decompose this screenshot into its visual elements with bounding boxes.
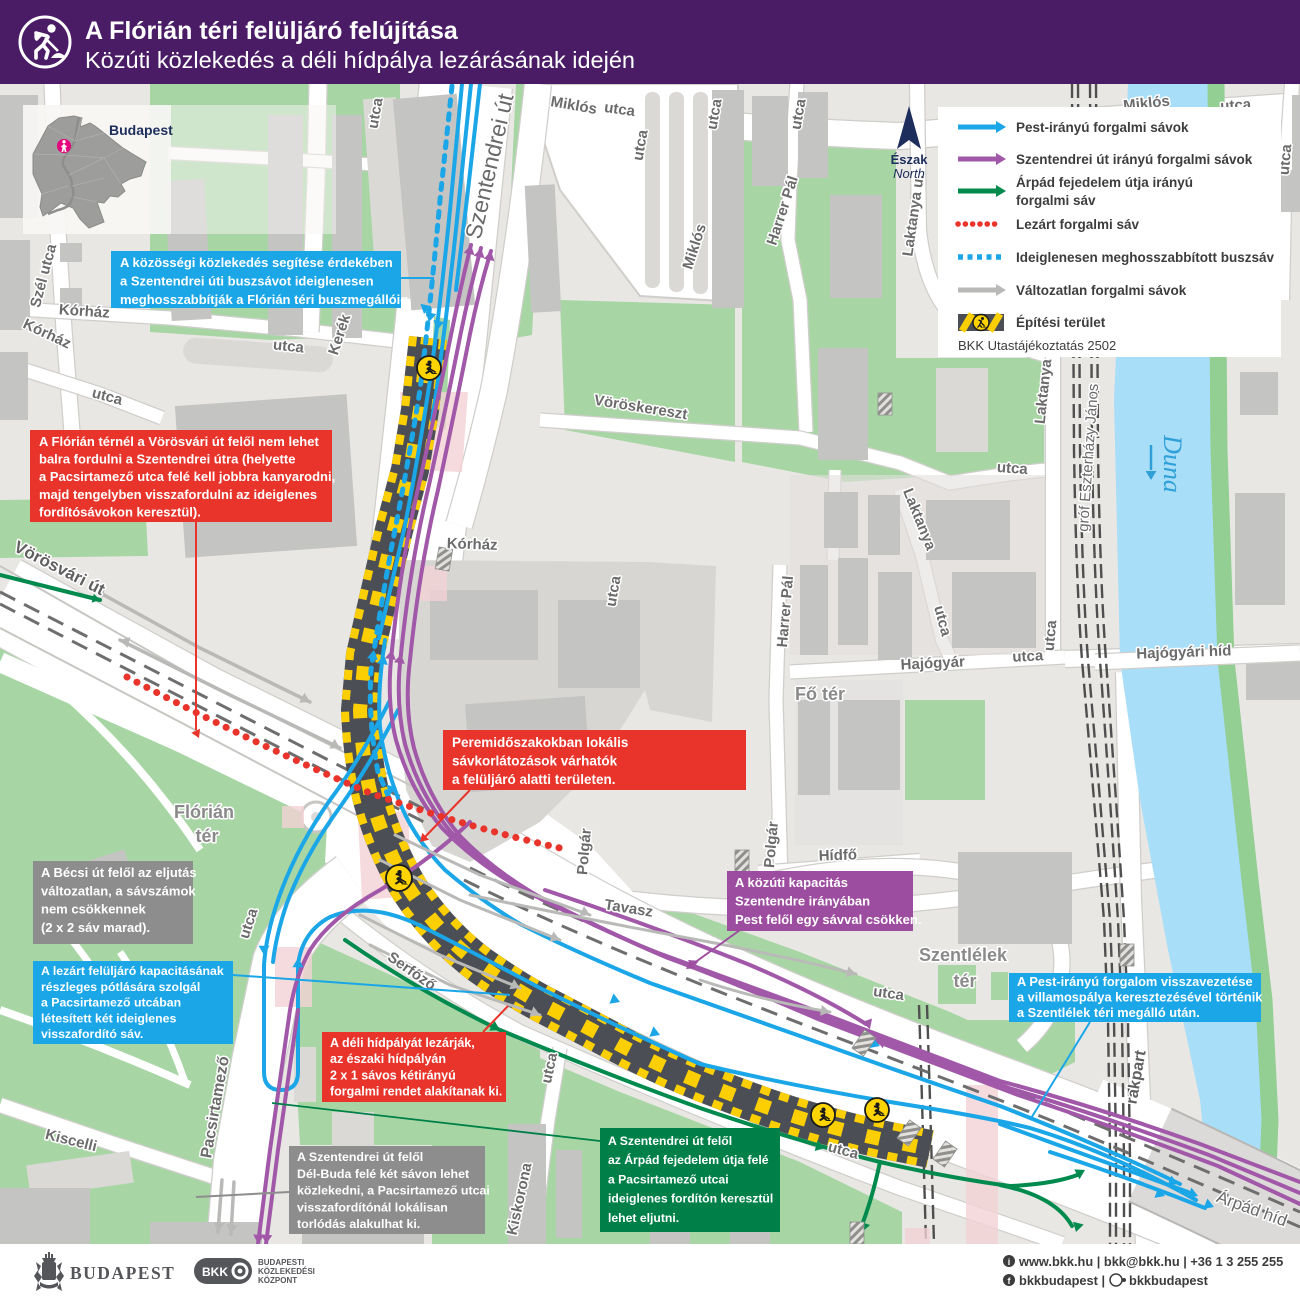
svg-text:Budapest: Budapest bbox=[109, 122, 173, 138]
svg-text:forgalmi rendet alakítanak ki.: forgalmi rendet alakítanak ki. bbox=[330, 1085, 502, 1099]
svg-text:Pest-irányú forgalmi sávok: Pest-irányú forgalmi sávok bbox=[1016, 120, 1189, 135]
svg-text:bkkbudapest |: bkkbudapest | bbox=[1019, 1273, 1105, 1288]
svg-text:Szentendre irányában: Szentendre irányában bbox=[735, 894, 870, 909]
svg-text:Építési terület: Építési terület bbox=[1016, 315, 1106, 330]
svg-text:balra fordulni a Szentendrei ú: balra fordulni a Szentendrei útra (helye… bbox=[39, 452, 295, 467]
svg-text:Duna: Duna bbox=[1158, 434, 1187, 493]
svg-text:tér: tér bbox=[195, 826, 218, 846]
svg-text:forgalmi sáv: forgalmi sáv bbox=[1016, 193, 1096, 208]
svg-text:tér: tér bbox=[953, 971, 976, 991]
svg-text:nem csökkennek: nem csökkennek bbox=[41, 902, 147, 917]
svg-text:utca: utca bbox=[1041, 619, 1061, 652]
svg-text:közlekedni, a Pacsirtamező utc: közlekedni, a Pacsirtamező utcai bbox=[297, 1184, 490, 1198]
svg-text:(2 x 2 sáv marad).: (2 x 2 sáv marad). bbox=[41, 920, 150, 935]
svg-text:Közúti közlekedés a déli hídpá: Közúti közlekedés a déli hídpálya lezárá… bbox=[85, 47, 635, 73]
svg-text:a Pacsirtamező utca felé kell: a Pacsirtamező utca felé kell jobbra kan… bbox=[39, 469, 335, 484]
svg-text:visszafordítónál lokálisan: visszafordítónál lokálisan bbox=[297, 1200, 448, 1214]
svg-text:a Szentendrei úti buszsávot id: a Szentendrei úti buszsávot ideiglenesen bbox=[120, 274, 374, 289]
svg-text:A közösségi közlekedés segítés: A közösségi közlekedés segítése érdekébe… bbox=[120, 255, 393, 270]
svg-text:i: i bbox=[1008, 1257, 1011, 1267]
svg-text:utca: utca bbox=[1012, 647, 1044, 666]
svg-text:sávkorlátozások várhatók: sávkorlátozások várhatók bbox=[452, 754, 618, 769]
svg-text:BUDAPEST: BUDAPEST bbox=[70, 1263, 175, 1283]
svg-text:ideiglenes fordítón keresztül: ideiglenes fordítón keresztül bbox=[608, 1192, 773, 1206]
svg-text:a Pacsirtamező utcában: a Pacsirtamező utcában bbox=[41, 996, 181, 1010]
svg-text:A Flórián térnél a Vörösvári ú: A Flórián térnél a Vörösvári út felől ne… bbox=[39, 434, 319, 449]
svg-text:Hajógyár: Hajógyár bbox=[900, 653, 965, 673]
svg-text:változatlan, a sávszámok: változatlan, a sávszámok bbox=[41, 883, 196, 898]
svg-text:A Flórián téri felüljáró felúj: A Flórián téri felüljáró felújítása bbox=[85, 17, 459, 45]
svg-text:Dél-Buda felé két sávon lehet: Dél-Buda felé két sávon lehet bbox=[297, 1167, 469, 1181]
svg-text:Pest felől egy sávval csökken.: Pest felől egy sávval csökken. bbox=[735, 912, 921, 927]
svg-text:a villamospálya keresztezéséve: a villamospálya keresztezésével történik bbox=[1017, 990, 1263, 1005]
svg-text:utca: utca bbox=[272, 336, 305, 356]
svg-text:Ideiglenesen meghosszabbított: Ideiglenesen meghosszabbított buszsáv bbox=[1016, 250, 1275, 265]
svg-text:visszafordító sáv.: visszafordító sáv. bbox=[41, 1027, 143, 1041]
svg-text:Árpád fejedelem útja irányú: Árpád fejedelem útja irányú bbox=[1016, 175, 1193, 190]
svg-text:Lezárt forgalmi sáv: Lezárt forgalmi sáv bbox=[1016, 217, 1140, 232]
svg-text:A déli hídpályát lezárják,: A déli hídpályát lezárják, bbox=[330, 1036, 475, 1050]
svg-text:az Árpád fejedelem útja felé: az Árpád fejedelem útja felé bbox=[608, 1152, 769, 1167]
svg-text:Kórház: Kórház bbox=[446, 535, 497, 554]
svg-text:Fő tér: Fő tér bbox=[795, 684, 845, 704]
svg-text:Hídfő: Hídfő bbox=[818, 846, 857, 864]
svg-text:a felüljáró alatti területen.: a felüljáró alatti területen. bbox=[452, 772, 616, 787]
svg-text:torlódás alakulhat ki.: torlódás alakulhat ki. bbox=[297, 1217, 420, 1231]
svg-text:A Bécsi út felől az eljutás: A Bécsi út felől az eljutás bbox=[41, 865, 197, 880]
svg-text:BKK Utastájékoztatás 2502: BKK Utastájékoztatás 2502 bbox=[958, 338, 1116, 353]
svg-text:A Szentendrei út felől: A Szentendrei út felől bbox=[297, 1150, 423, 1164]
svg-text:A közúti kapacitás: A közúti kapacitás bbox=[735, 875, 848, 890]
svg-text:BKK: BKK bbox=[202, 1265, 228, 1279]
svg-text:az északi hídpályán: az északi hídpályán bbox=[330, 1052, 446, 1066]
svg-text:meghosszabbítják a Flórián tér: meghosszabbítják a Flórián téri buszmegá… bbox=[120, 292, 412, 307]
svg-text:North: North bbox=[893, 166, 925, 181]
svg-text:Szentlélek: Szentlélek bbox=[919, 945, 1008, 965]
svg-text:Szentendrei út irányú forgalmi: Szentendrei út irányú forgalmi sávok bbox=[1016, 152, 1253, 167]
svg-text:2 x 1 sávos kétirányú: 2 x 1 sávos kétirányú bbox=[330, 1068, 456, 1082]
svg-text:Hajógyári híd: Hajógyári híd bbox=[1136, 642, 1232, 662]
svg-text:fordítósávokon keresztül).: fordítósávokon keresztül). bbox=[39, 504, 201, 519]
svg-text:bkkbudapest: bkkbudapest bbox=[1129, 1273, 1209, 1288]
svg-text:A Pest-irányú forgalom visszav: A Pest-irányú forgalom visszavezetése bbox=[1017, 974, 1253, 989]
svg-text:utca: utca bbox=[996, 459, 1029, 478]
svg-text:majd tengelyben visszafordulni: majd tengelyben visszafordulni az ideigl… bbox=[39, 487, 317, 502]
svg-text:A lezárt felüljáró kapacitásán: A lezárt felüljáró kapacitásának bbox=[41, 964, 224, 978]
svg-text:KÖZPONT: KÖZPONT bbox=[258, 1276, 297, 1285]
svg-text:Változatlan forgalmi sávok: Változatlan forgalmi sávok bbox=[1016, 283, 1187, 298]
svg-text:A Szentendrei út felől: A Szentendrei út felől bbox=[608, 1134, 732, 1148]
svg-text:létesített két ideiglenes: létesített két ideiglenes bbox=[41, 1011, 176, 1025]
svg-text:KÖZLEKEDÉSI: KÖZLEKEDÉSI bbox=[258, 1267, 315, 1276]
svg-text:Flórián: Flórián bbox=[174, 802, 234, 822]
svg-text:Észak: Észak bbox=[891, 152, 929, 167]
svg-text:BUDAPESTI: BUDAPESTI bbox=[258, 1258, 304, 1267]
svg-text:lehet eljutni.: lehet eljutni. bbox=[608, 1211, 679, 1225]
svg-text:Peremidőszakokban lokális: Peremidőszakokban lokális bbox=[452, 735, 628, 750]
svg-text:a Szentlélek téri megálló után: a Szentlélek téri megálló után. bbox=[1017, 1005, 1200, 1020]
svg-text:a Pacsirtamező utcai: a Pacsirtamező utcai bbox=[608, 1172, 729, 1186]
svg-text:Kórház: Kórház bbox=[58, 301, 110, 322]
svg-text:www.bkk.hu | bkk@bkk.hu | +36: www.bkk.hu | bkk@bkk.hu | +36 1 3 255 25… bbox=[1018, 1254, 1283, 1269]
svg-text:részleges pótlására szolgál: részleges pótlására szolgál bbox=[41, 980, 200, 994]
